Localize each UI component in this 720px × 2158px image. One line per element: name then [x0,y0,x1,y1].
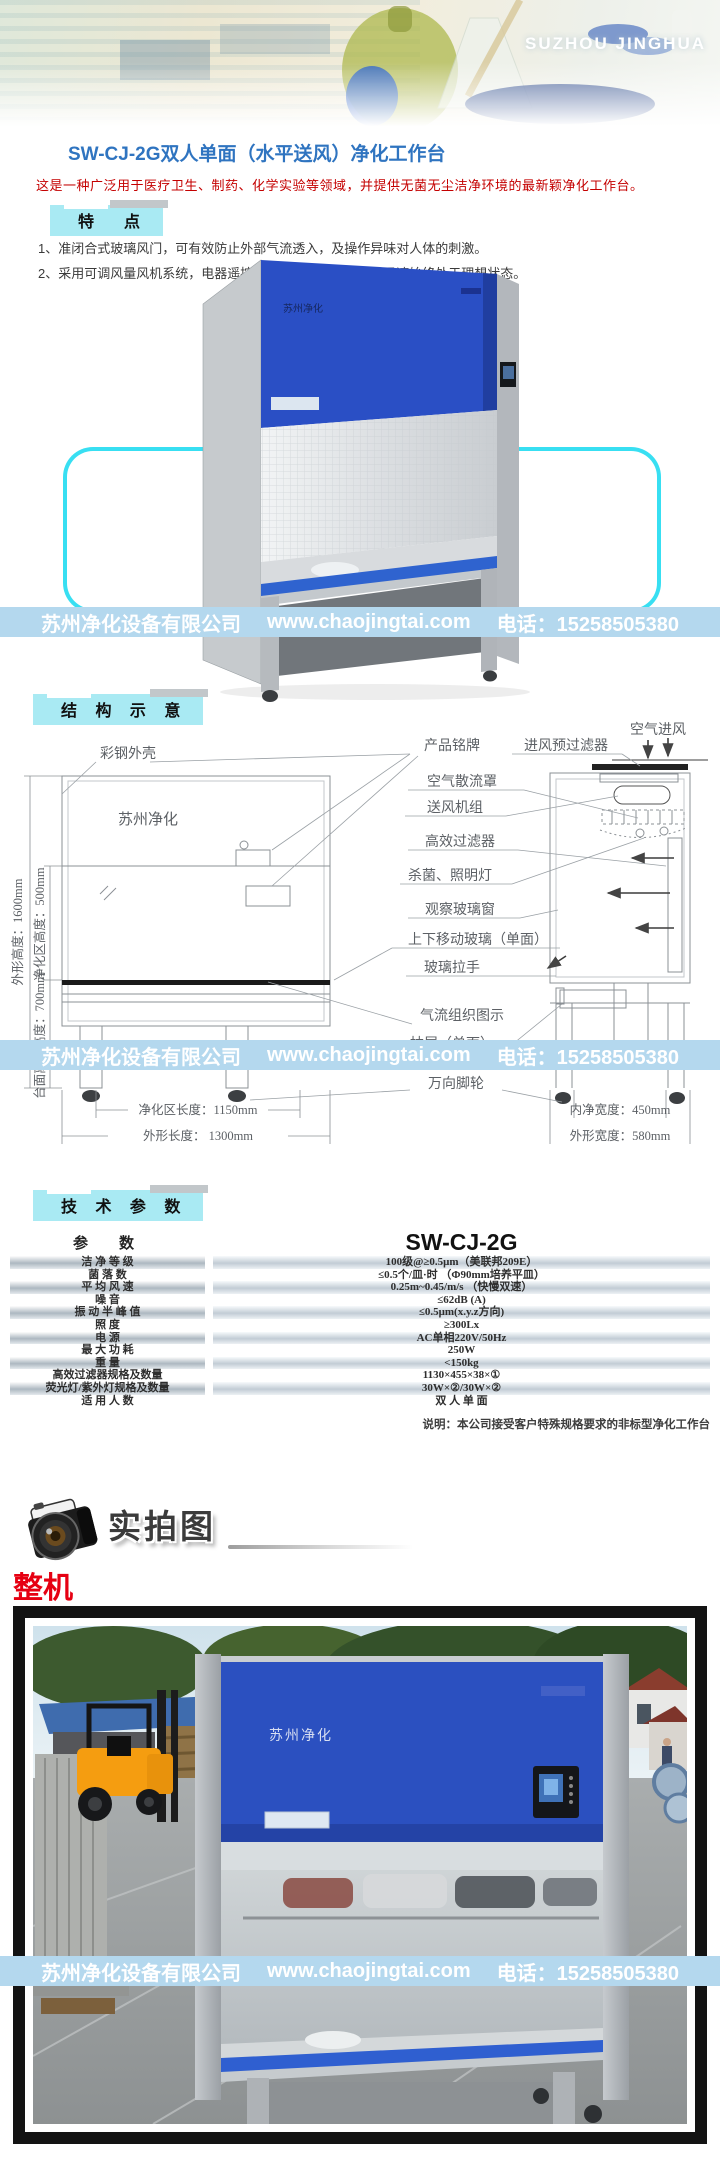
spec-header-param: 参 数 [10,1232,205,1253]
spec-row: 振 动 半 峰 值≤0.5μm(x.y.z方向) [10,1306,710,1319]
watermark-phone: 电话：15258505380 [497,1957,679,1986]
spec-row: 洁 净 等 级100级@≥0.5μm（美联邦209E） [10,1256,710,1269]
bench-left-column [195,1654,221,2100]
heading-underline-decor [228,1545,413,1549]
watermark-bar: 苏州净化设备有限公司 www.chaojingtai.com 电话：152585… [0,607,720,637]
spec-row: 电 源AC单相220V/50Hz [10,1332,710,1345]
structure-diagram: 苏州净化 [0,718,720,1170]
label-hepa-filter: 高效过滤器 [425,833,495,850]
paper-on-surface [305,2031,361,2049]
label-lamps: 杀菌、照明灯 [408,868,492,884]
label-sticker [271,397,319,410]
clean-bench-photo2: 苏州净化 [195,1654,629,2124]
label-nameplate: 产品铭牌 [424,737,480,754]
spec-table: 参 数 SW-CJ-2G 洁 净 等 级100级@≥0.5μm（美联邦209E）… [10,1228,710,1432]
caster-wheel [262,690,278,702]
blue-panel-edge [483,273,497,411]
diagram-bench-brand: 苏州净化 [118,811,178,828]
spec-row: 噪 音≤62dB (A) [10,1294,710,1307]
section-header-features: 特 点 [50,205,163,236]
label-moving-glass: 上下移动玻璃（单面） [408,931,548,948]
spec-row: 平 均 风 速0.25m~0.45/m/s （快慢双速） [10,1281,710,1294]
caster-wheel [533,2088,549,2104]
under-cabinet [269,2082,553,2124]
dim-outer-width: 外形宽度：580mm [570,1128,671,1143]
caster-wheel-2 [483,671,497,682]
banner: SUZHOU JINGHUA [0,0,720,132]
label-window: 观察玻璃窗 [425,901,495,918]
watermark-bar: 苏州净化设备有限公司 www.chaojingtai.com 电话：152585… [0,1040,720,1070]
interior-grid-texture [261,410,497,562]
spec-table-header: 参 数 SW-CJ-2G [10,1228,710,1256]
label-sticker [265,1812,329,1828]
spec-header-model: SW-CJ-2G [213,1229,710,1256]
label-shell: 彩钢外壳 [100,745,156,762]
watermark-website: www.chaojingtai.com [267,1044,471,1067]
label-airflow: 气流组织图示 [420,1008,504,1024]
product-intro: 这是一种广泛用于医疗卫生、制药、化学实验等领域，并提供无菌无尘洁净环境的最新颖净… [36,175,644,194]
banner-brand-text: SUZHOU JINGHUA [525,34,706,54]
bench-right-column [497,274,519,664]
bottle-stopper-shape [388,6,412,32]
watermark-phone: 电话：15258505380 [497,608,679,637]
dim-clean-length: 净化区长度：1150mm [139,1102,258,1117]
spec-row: 照 度≥300Lx [10,1319,710,1332]
spec-row: 最 大 功 耗250W [10,1344,710,1357]
dim-outer-length: 外形长度： 1300mm [143,1128,253,1143]
screen-glow [544,1779,558,1795]
dim-inner-width: 内净宽度：450mm [570,1102,671,1117]
equipment-shape-2 [220,24,330,54]
open-work-area [221,1842,603,2048]
spec-row: 菌 落 数≤0.5个/皿·时 （Φ90mm培养平皿） [10,1269,710,1282]
page-title: SW-CJ-2G双人单面（水平送风）净化工作台 [68,139,446,166]
dimension-lines [24,776,690,1144]
control-screen [503,366,514,379]
spec-row: 适 用 人 数双 人 单 面 [10,1395,710,1408]
front-right-leg [553,2072,575,2124]
outdoor-product-photo: 苏州净化 [33,1626,687,2124]
reflection-sky [221,1842,603,1870]
banner-fade [0,62,720,132]
label-prefilter: 进风预过滤器 [524,738,608,754]
section-header-specs: 技 术 参 数 [33,1190,203,1221]
dim-table-height: 台面离地高度：700mm [32,973,47,1099]
label-casters: 万向脚轮 [428,1076,484,1092]
caster-wheel-2 [584,2105,602,2123]
real-photos-heading: 实拍图 [108,1500,216,1548]
watermark-company: 苏州净化设备有限公司 [41,1957,241,1986]
spec-row: 重 量<150kg [10,1357,710,1370]
bench-logo-text: 苏州净化 [269,1727,333,1743]
watermark-bar: 苏州净化设备有限公司 www.chaojingtai.com 电话：152585… [0,1956,720,1986]
label-fan-unit: 送风机组 [427,800,483,816]
vent-slot [461,288,481,294]
watermark-website: www.chaojingtai.com [267,1960,471,1983]
watermark-company: 苏州净化设备有限公司 [41,1041,241,1070]
spec-row: 高效过滤器规格及数量1130×455×38×① [10,1369,710,1382]
camera-icon [20,1490,106,1568]
spec-row: 荧光灯/紫外灯规格及数量30W×②/30W×② [10,1382,710,1395]
bench-right-column [603,1654,629,2100]
watermark-website: www.chaojingtai.com [267,611,471,634]
model-badge [541,1686,585,1696]
bench-logo-text: 苏州净化 [283,302,323,315]
product-page: SUZHOU JINGHUA SW-CJ-2G双人单面（水平送风）净化工作台 这… [0,0,720,2158]
front-left-leg [247,2078,269,2124]
label-handle: 玻璃拉手 [424,959,480,976]
person [663,1738,671,1746]
label-air-inlet: 空气进风 [630,722,686,738]
photo-frame: 苏州净化 [13,1606,707,2144]
dim-clean-height: 净化区高度：500mm [32,867,47,980]
diagram-labels: 彩钢外壳 产品铭牌 进风预过滤器 空气进风 空气散流罩 送风机组 高效过滤器 杀… [100,722,686,1092]
dim-outer-height: 外形高度：1600mm [10,878,25,985]
spec-note: 说明：本公司接受客户特殊规格要求的非标型净化工作台 [10,1416,710,1432]
label-diffuser: 空气散流罩 [427,774,497,790]
watermark-phone: 电话：15258505380 [497,1041,679,1070]
whole-machine-caption: 整机 [13,1563,73,1607]
watermark-company: 苏州净化设备有限公司 [41,608,241,637]
